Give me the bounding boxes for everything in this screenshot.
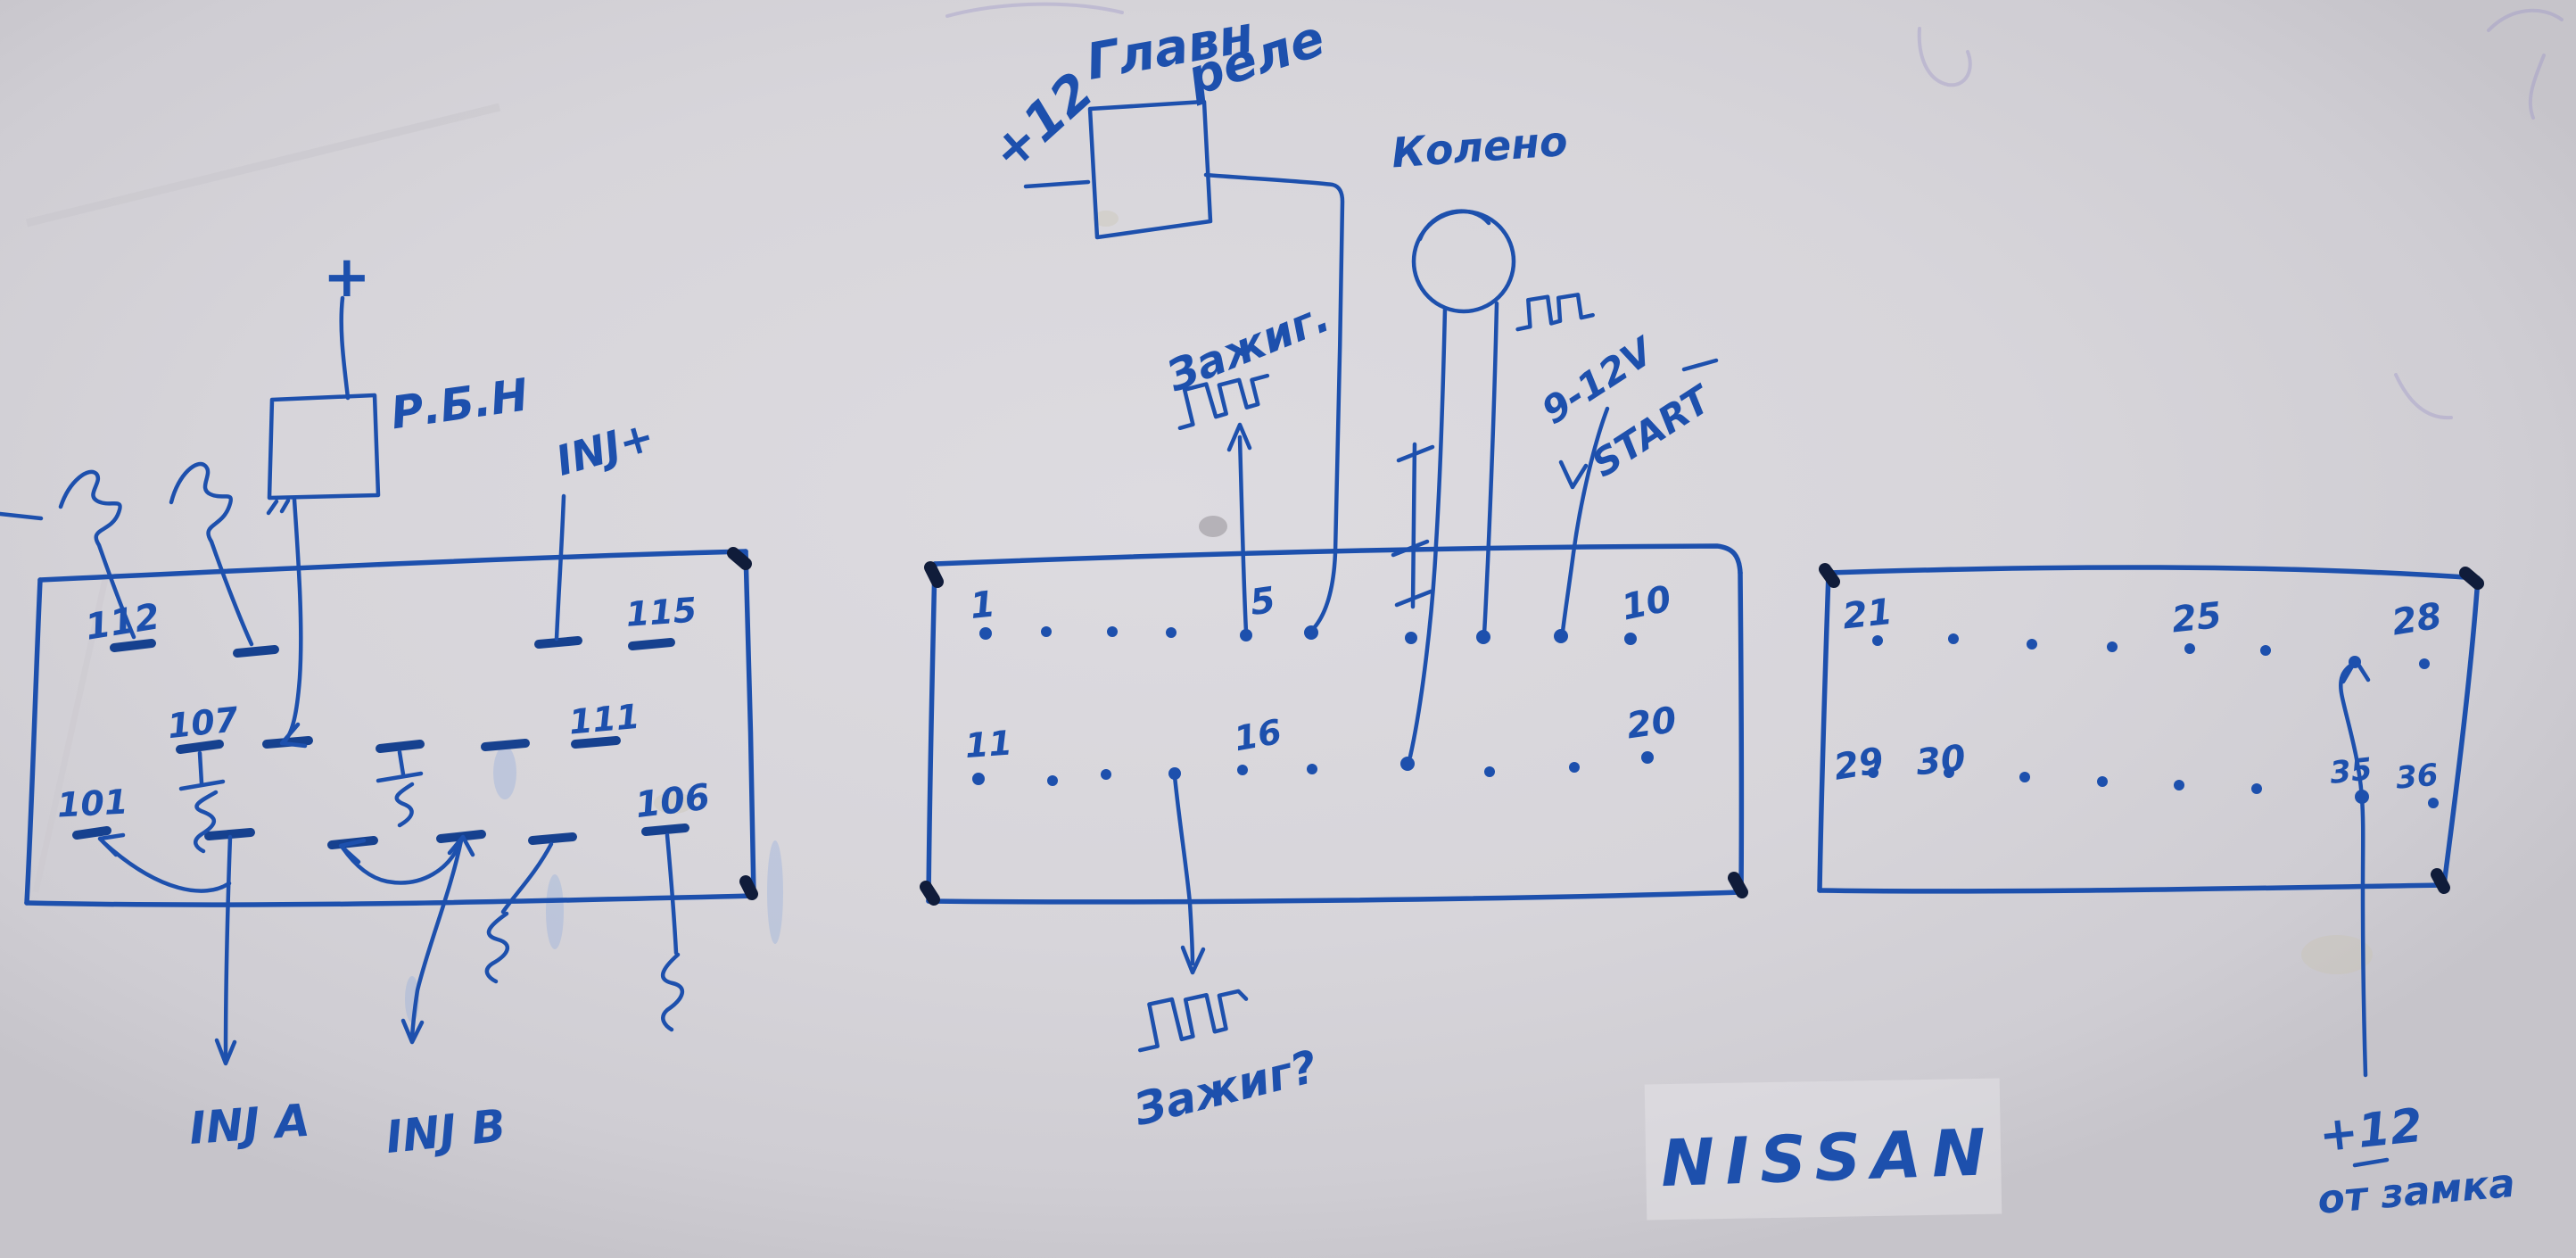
wire-relay-to-pin6 <box>1206 175 1342 628</box>
pencil-smudge <box>1199 516 1227 537</box>
pin-label-30: 30 <box>1914 738 1968 784</box>
square-wave-symbol-crank <box>1515 294 1593 329</box>
plus12-lock-wire <box>2341 663 2365 1075</box>
pin-106-dash <box>646 828 685 832</box>
left-block-bottom-edge <box>27 896 754 905</box>
pin-label-29: 29 <box>1831 741 1887 789</box>
pin-101-dash <box>77 831 107 835</box>
right-block-bottom-edge <box>1820 885 2444 891</box>
rbn-label: Р.Б.Н <box>388 368 532 439</box>
right-block-right-edge <box>2444 578 2478 885</box>
pin-dash <box>485 743 525 747</box>
pin-107-dash <box>180 744 219 749</box>
plus12-lock-label: +12 <box>2316 1099 2425 1163</box>
middle-connector-block: 1 5 10 11 16 20 Зажиг. Зажиг? <box>926 292 1742 1137</box>
pin-label-106: 106 <box>633 776 712 826</box>
arc-to-pin101 <box>103 842 229 891</box>
ticked-wire <box>1413 444 1415 607</box>
ground-lead <box>667 835 676 953</box>
pin-injplus-dash <box>539 641 578 644</box>
box-feet-marks <box>268 501 288 513</box>
rbn-relay: + Р.Б.Н INJ+ <box>268 244 659 746</box>
pin-label-111: 111 <box>567 697 641 742</box>
corner-blob <box>746 881 752 894</box>
corner-blob <box>926 887 934 899</box>
arrowhead-mid <box>1561 462 1586 487</box>
left-block-top-edge <box>40 551 746 580</box>
pin-label-10: 10 <box>1618 578 1675 629</box>
crank-wire-2 <box>1484 303 1497 633</box>
inj-b-label: INJ B <box>384 1099 508 1163</box>
brand-label: NISSAN <box>1660 1114 1998 1201</box>
pin-label-36: 36 <box>2394 757 2440 797</box>
ground-squiggle <box>487 914 508 981</box>
right-block-top-edge <box>1829 567 2478 578</box>
pin-label-35: 35 <box>2328 751 2374 791</box>
pin-label-101: 101 <box>56 782 129 825</box>
pin-111-dash <box>575 741 616 744</box>
pin-label-5: 5 <box>1248 580 1278 624</box>
left-block-right-edge <box>746 551 754 896</box>
inj-plus-label: INJ+ <box>550 411 659 485</box>
ghost-writing-top-center <box>1920 29 1970 85</box>
plus-sign: + <box>323 244 371 310</box>
pin-label-25: 25 <box>2170 595 2224 641</box>
from-lock-overline <box>2355 1160 2387 1165</box>
crank-sensor-loop <box>1420 211 1489 239</box>
middle-block-bottom-edge <box>929 892 1741 902</box>
square-wave-symbol-bottom <box>1133 987 1252 1050</box>
crank-label: Колено <box>1390 117 1569 178</box>
rbn-relay-box <box>269 395 378 498</box>
wire-plus-to-relay <box>342 298 348 398</box>
from-lock-label: от замка <box>2316 1161 2516 1223</box>
corner-blob <box>2437 874 2444 888</box>
pin-label-11: 11 <box>963 723 1013 766</box>
pin-label-21: 21 <box>1841 592 1895 638</box>
middle-block-top-edge <box>935 546 1740 573</box>
plus12-relay-label: +12 <box>978 61 1105 183</box>
arrowhead <box>100 835 123 855</box>
ghost-arc-top <box>947 4 1122 16</box>
pin-label-20: 20 <box>1624 699 1680 747</box>
ground-squiggle <box>663 955 682 1030</box>
stray-line-left-edge <box>0 514 41 518</box>
right-block-left-edge <box>1820 573 1829 890</box>
injector-squiggle-2 <box>171 464 252 644</box>
wire-relay-left <box>1026 182 1088 186</box>
start-overline <box>1684 360 1716 369</box>
inj-a-label: INJ A <box>187 1095 311 1155</box>
middle-block-right-edge <box>1740 573 1741 892</box>
inj-a-wire <box>226 837 230 1057</box>
paper-sheet: 112 115 107 111 101 106 + Р.Б.Н INJ+ +12… <box>0 0 2576 1258</box>
crank-sensor-group: Колено 9-12V START <box>1390 117 1721 757</box>
ground-symbol <box>378 752 421 825</box>
left-block-left-edge <box>27 580 40 903</box>
wire-injplus-to-pin <box>557 496 564 639</box>
corner-blob <box>1734 878 1742 892</box>
pin-label-28: 28 <box>2390 595 2445 643</box>
ignition-signal-wire-up <box>1240 437 1246 632</box>
pin-label-16: 16 <box>1231 712 1284 759</box>
pin-dash <box>380 744 420 749</box>
pin-112-dash <box>114 643 152 648</box>
right-connector-block: 21 25 28 29 30 35 36 <box>1820 567 2478 1075</box>
corner-blob <box>930 567 937 582</box>
paper-artifacts <box>0 4 2562 1022</box>
middle-block-left-edge <box>929 564 935 901</box>
wire-relay-to-pin <box>285 500 301 741</box>
pin-label-107: 107 <box>166 699 241 746</box>
pin-label-1: 1 <box>969 583 997 627</box>
ignition-wire-down <box>1175 776 1193 964</box>
corner-blob <box>2465 573 2478 583</box>
wiring-diagram-svg: 112 115 107 111 101 106 + Р.Б.Н INJ+ +12… <box>0 0 2576 1258</box>
pin-115-dash <box>632 642 671 646</box>
corner-blob <box>1825 569 1834 582</box>
corner-blob <box>733 553 746 564</box>
left-connector-block: 112 115 107 111 101 106 <box>27 464 754 1064</box>
pin-dash <box>237 650 275 653</box>
ignition-bottom-label: Зажиг? <box>1128 1040 1323 1136</box>
ghost-writing-top-right <box>2489 11 2562 118</box>
pin-label-115: 115 <box>624 590 698 633</box>
pin-dash <box>533 837 573 840</box>
ignition-top-label: Зажиг. <box>1160 292 1337 402</box>
ghost-mark-right <box>2396 375 2451 418</box>
bottom-labels: INJ A INJ B NISSAN +12 от замка <box>187 1079 2516 1223</box>
